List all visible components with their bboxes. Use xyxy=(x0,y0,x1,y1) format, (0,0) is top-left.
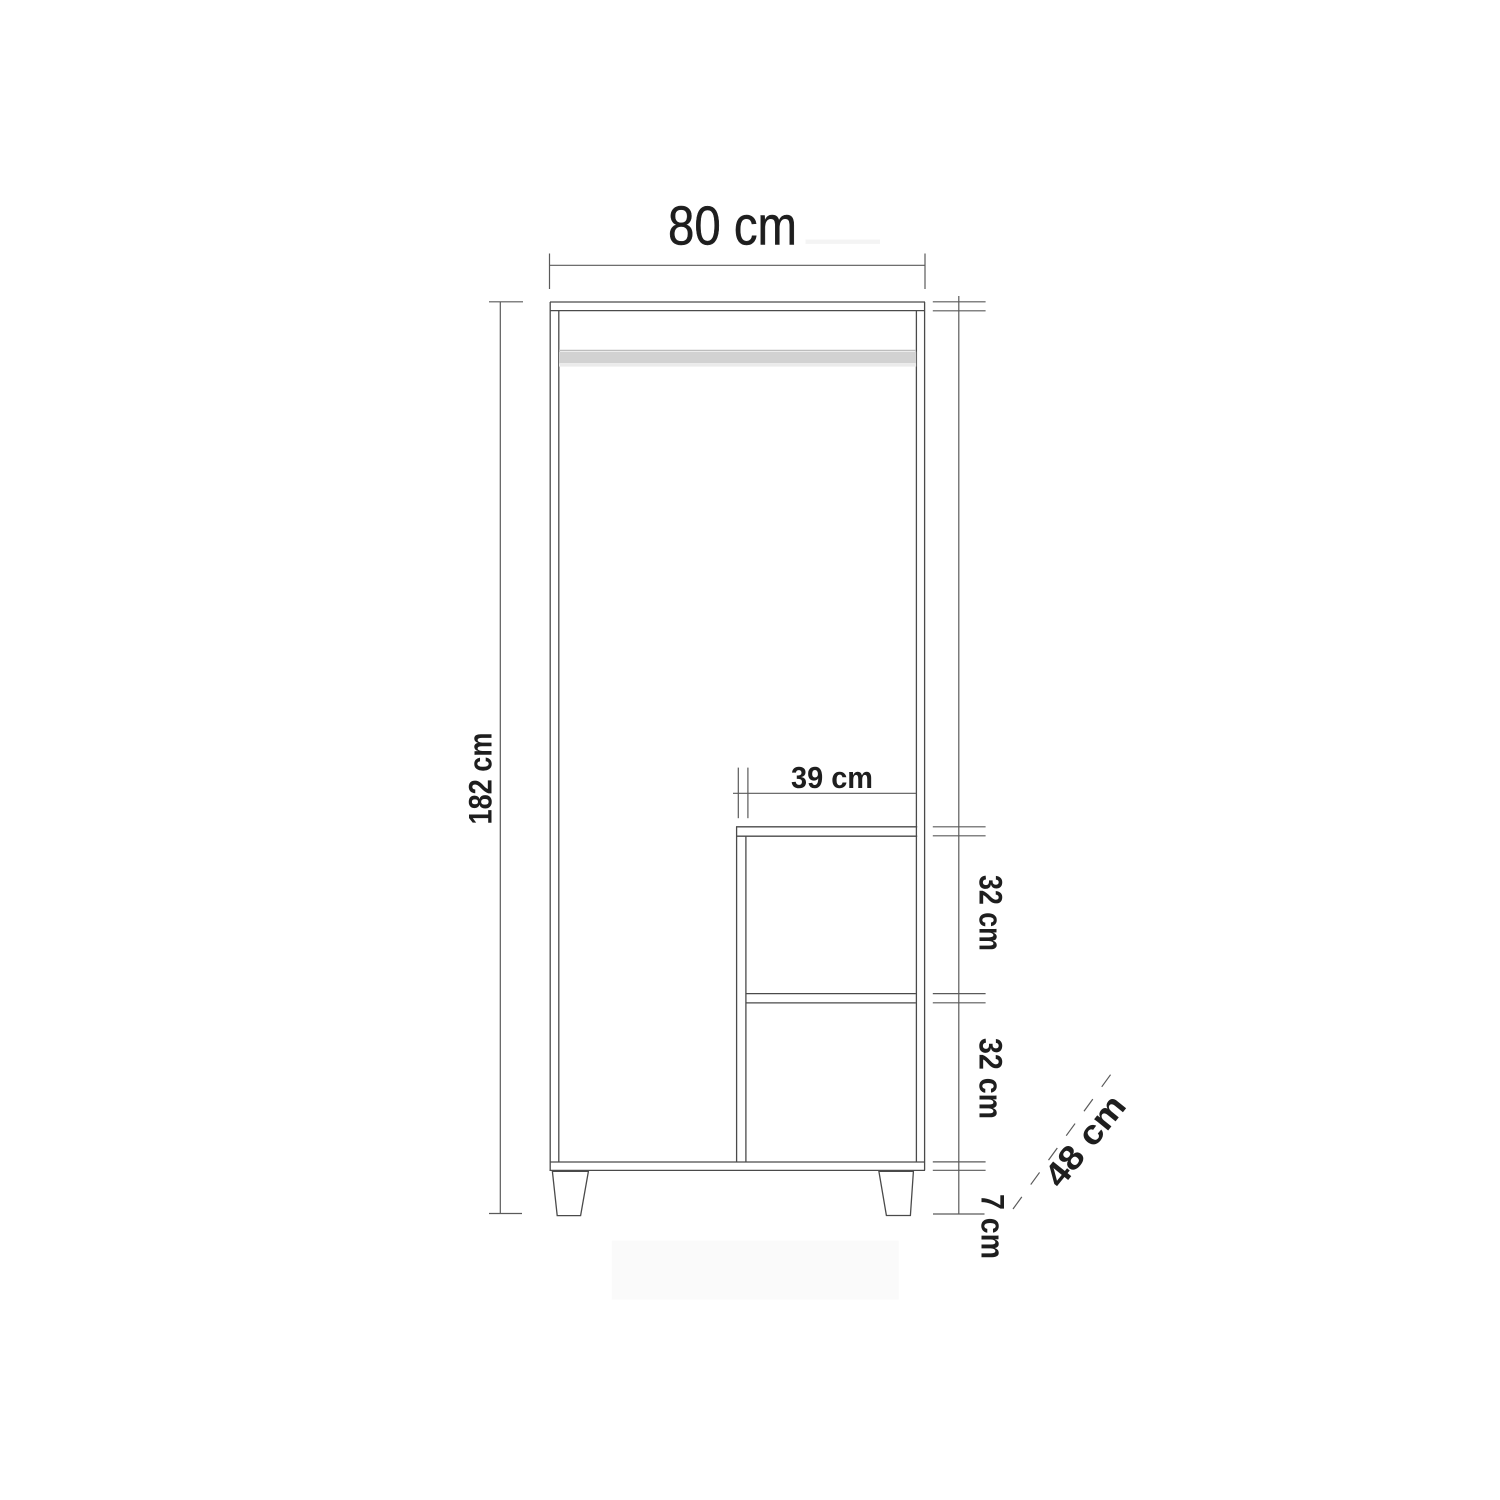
svg-text:32 cm: 32 cm xyxy=(973,1038,1009,1119)
svg-text:7 cm: 7 cm xyxy=(975,1194,1011,1259)
svg-text:182 cm: 182 cm xyxy=(462,733,498,825)
svg-text:39 cm: 39 cm xyxy=(791,760,873,795)
svg-text:80 cm: 80 cm xyxy=(668,195,797,257)
svg-text:32 cm: 32 cm xyxy=(973,875,1009,951)
